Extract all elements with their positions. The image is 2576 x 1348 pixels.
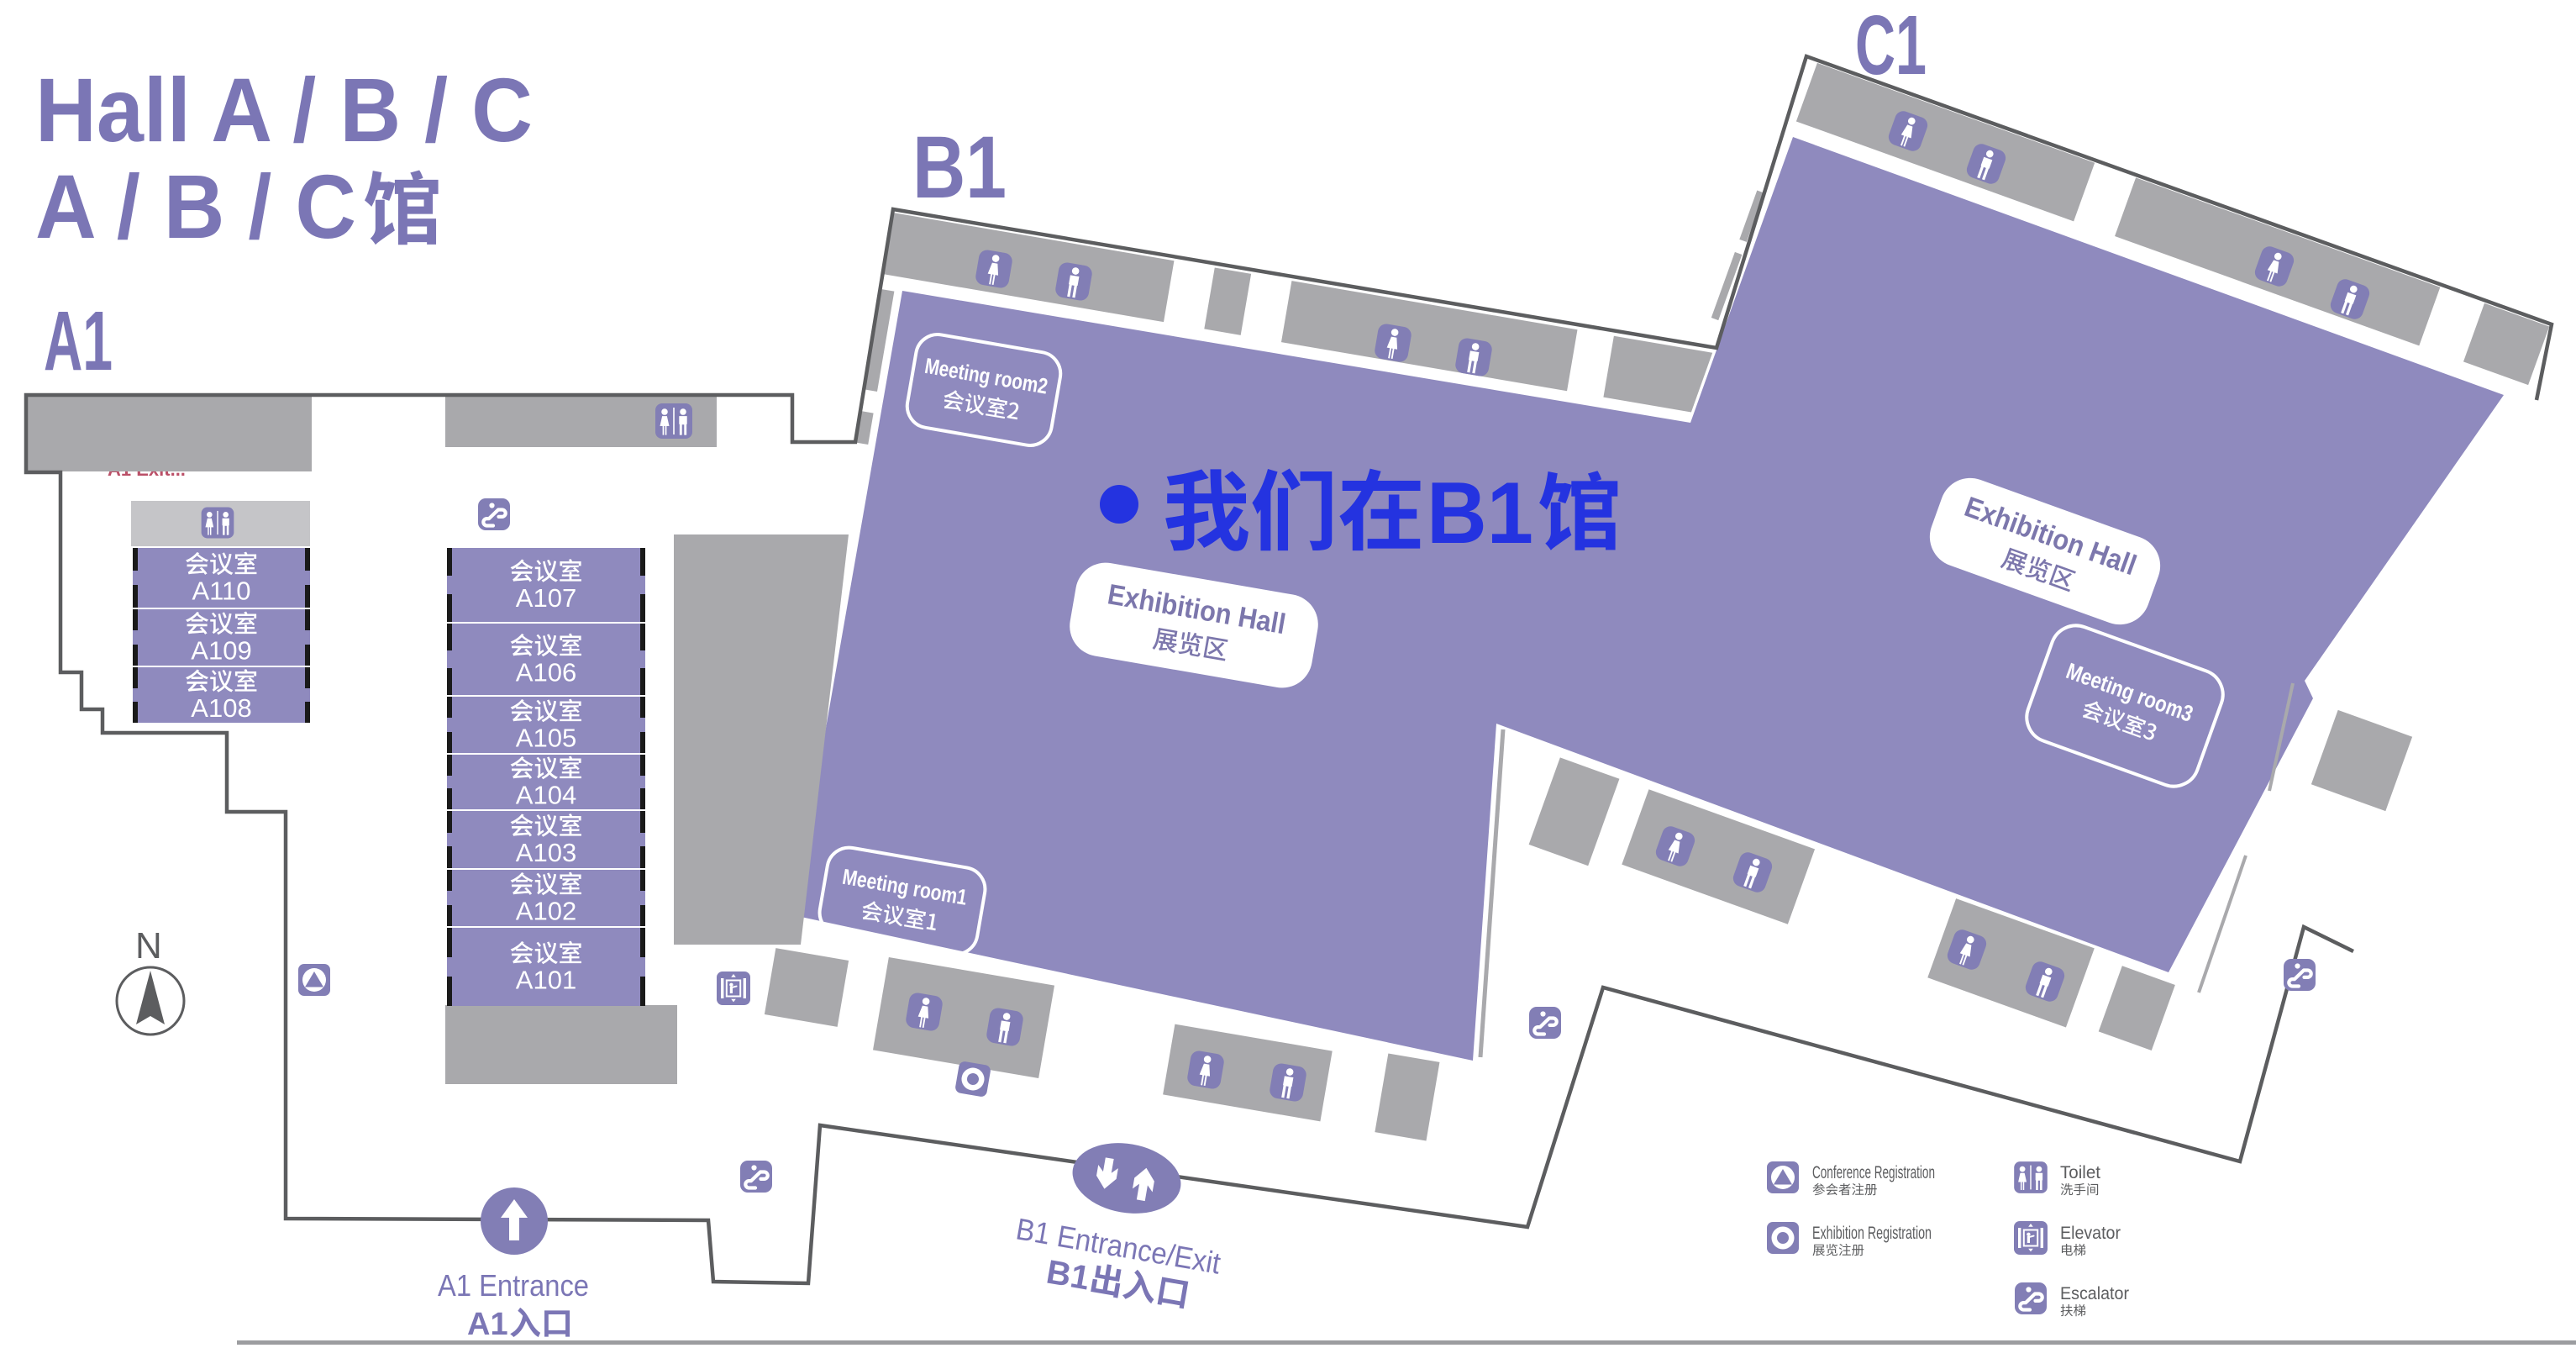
svg-text:A1 Entrance: A1 Entrance: [438, 1268, 589, 1303]
svg-text:A / B / C: A / B / C: [35, 155, 356, 257]
svg-text:A107: A107: [516, 583, 576, 613]
svg-text:B1: B1: [1427, 465, 1533, 562]
svg-text:N: N: [135, 925, 162, 966]
svg-text:Elevator: Elevator: [2060, 1224, 2121, 1243]
svg-text:A103: A103: [516, 838, 576, 867]
svg-text:Hall A / B / C: Hall A / B / C: [35, 59, 533, 161]
svg-text:A110: A110: [192, 577, 250, 606]
svg-text:Toilet: Toilet: [2060, 1163, 2100, 1182]
svg-text:B1: B1: [1044, 1254, 1092, 1298]
svg-text:A101: A101: [516, 966, 576, 995]
svg-text:A104: A104: [516, 781, 576, 810]
svg-text:A106: A106: [516, 658, 576, 687]
svg-text:Escalator: Escalator: [2060, 1284, 2129, 1303]
svg-text:Conference Registration: Conference Registration: [1812, 1163, 1935, 1182]
svg-text:B1: B1: [912, 118, 1007, 217]
svg-text:A102: A102: [516, 897, 576, 926]
svg-text:A105: A105: [516, 724, 576, 753]
svg-text:A1: A1: [467, 1307, 508, 1342]
svg-text:A108: A108: [191, 693, 251, 723]
svg-text:C1: C1: [1855, 0, 1927, 92]
svg-text:Exhibition Registration: Exhibition Registration: [1812, 1224, 1932, 1243]
svg-text:A109: A109: [191, 636, 251, 666]
svg-text:A1: A1: [44, 294, 113, 388]
